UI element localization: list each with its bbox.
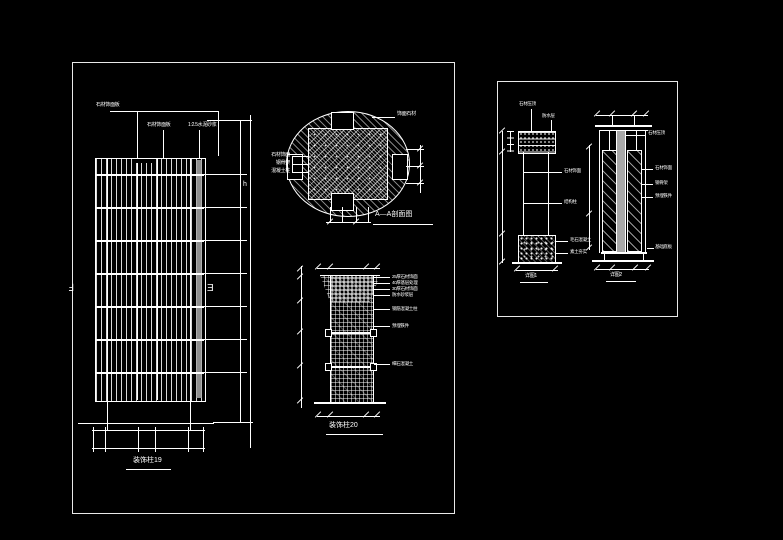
caption-underline bbox=[606, 281, 636, 282]
leader-line bbox=[374, 277, 390, 278]
detail-band-line bbox=[330, 366, 372, 368]
dimension-tick-strip bbox=[507, 131, 514, 153]
detail2-annotation: 预埋铁件 bbox=[655, 194, 672, 199]
dimension-tick-strip bbox=[204, 174, 247, 374]
caption-underline bbox=[520, 282, 548, 283]
detail-joint-block bbox=[325, 329, 332, 337]
detail-annotation: 细石混凝土 bbox=[392, 362, 413, 367]
detail1-shaft-joint bbox=[523, 172, 548, 173]
dimension-line bbox=[596, 269, 649, 270]
dimension-line bbox=[420, 145, 421, 193]
detail1-base-line bbox=[512, 262, 562, 264]
plan-caption: A—A剖面图 bbox=[375, 211, 412, 219]
dimension-line bbox=[406, 149, 424, 150]
plan-annotation: 混凝土柱 bbox=[250, 169, 290, 175]
leader-line bbox=[374, 283, 390, 284]
plan-notch-right bbox=[392, 154, 408, 180]
detail2-outer-face bbox=[599, 130, 600, 253]
detail2-stub-line bbox=[636, 130, 637, 150]
leader-line bbox=[137, 111, 138, 158]
dimension-tick bbox=[93, 427, 94, 452]
leader-line bbox=[374, 295, 390, 296]
base-extension-line bbox=[107, 400, 108, 430]
detail2-right-panel bbox=[627, 150, 642, 252]
detail2-base-stub bbox=[643, 252, 644, 260]
detail2-annotation: 基础底板 bbox=[655, 245, 672, 250]
detail2-annotation: 石材饰面 bbox=[655, 166, 672, 171]
detail2-stub-line bbox=[609, 130, 610, 150]
elevation-annotation: 石材饰面板 bbox=[96, 103, 120, 109]
detail2-caption: 详图2 bbox=[610, 273, 622, 279]
dimension-line bbox=[326, 222, 371, 223]
detail1-annotation: 素土夯实 bbox=[570, 250, 587, 255]
detail-annotation: 预埋铁件 bbox=[392, 324, 409, 329]
caption-underline bbox=[326, 434, 383, 435]
detail1-annotation: 防水层 bbox=[542, 114, 555, 119]
plan-annotation: 石材饰面 bbox=[250, 153, 290, 159]
detail2-base-stub bbox=[604, 252, 605, 260]
detail-joint-block bbox=[325, 363, 332, 371]
caption-underline bbox=[126, 469, 171, 470]
detail1-annotation: 石材压顶 bbox=[519, 102, 536, 107]
cad-canvas: 石材饰面板 石材饰面板 1:2.5水泥砂浆 Ⅎ Ǝ h 装饰柱19 石材饰面 钢… bbox=[0, 0, 783, 540]
section-marker-left: Ⅎ bbox=[68, 283, 74, 294]
detail-shaft bbox=[330, 275, 374, 403]
detail-annotation: 防水砂浆层 bbox=[392, 293, 413, 298]
leader-line bbox=[163, 130, 164, 158]
dimension-line bbox=[589, 145, 590, 250]
elevation-annotation: 石材饰面板 bbox=[147, 123, 171, 129]
dimension-tick bbox=[203, 427, 204, 452]
leader-line bbox=[292, 156, 308, 157]
leader-line bbox=[199, 130, 200, 158]
leader-line bbox=[374, 326, 390, 327]
dimension-line bbox=[406, 166, 424, 167]
dimension-tick bbox=[342, 207, 343, 223]
detail2-annotation: 钢骨架 bbox=[655, 181, 668, 186]
dimension-line bbox=[213, 422, 253, 423]
plan-core-square bbox=[308, 128, 388, 200]
detail1-shaft-joint bbox=[523, 203, 548, 204]
column-band-lines bbox=[95, 174, 204, 375]
leader-line bbox=[292, 172, 308, 173]
detail1-cap-block bbox=[518, 131, 556, 154]
column-joint-line bbox=[157, 158, 158, 400]
dimension-tick bbox=[138, 427, 139, 452]
detail1-footing-block bbox=[518, 235, 556, 264]
leader-line bbox=[548, 172, 562, 173]
dimension-tick bbox=[105, 427, 106, 452]
dimension-line bbox=[301, 266, 302, 408]
detail2-left-panel bbox=[602, 150, 617, 252]
dimension-tick bbox=[368, 207, 369, 223]
leader-line bbox=[372, 117, 395, 118]
detail-caption: 装饰柱20 bbox=[329, 422, 358, 430]
detail2-outer-face bbox=[645, 130, 646, 253]
dimension-line bbox=[596, 115, 648, 116]
leader-line bbox=[110, 111, 218, 112]
leader-line bbox=[647, 248, 654, 249]
detail2-annotation: 石材压顶 bbox=[648, 131, 665, 136]
dimension-tick bbox=[188, 427, 189, 452]
detail2-base-line bbox=[592, 260, 654, 262]
leader-line bbox=[555, 253, 568, 254]
leader-line bbox=[555, 241, 568, 242]
leader-line bbox=[624, 135, 646, 136]
leader-line bbox=[641, 197, 653, 198]
dimension-line bbox=[406, 183, 424, 184]
detail2-cap-plate bbox=[595, 125, 652, 127]
leader-line bbox=[374, 289, 390, 290]
detail2-steel-core bbox=[616, 131, 626, 252]
leader-line bbox=[641, 184, 653, 185]
leader-line bbox=[548, 203, 562, 204]
detail1-annotation: 结构柱 bbox=[564, 200, 577, 205]
plan-annotation: 饰面石材 bbox=[397, 112, 416, 118]
leader-line bbox=[531, 109, 532, 132]
leader-line bbox=[374, 309, 390, 310]
detail-joint-block bbox=[370, 329, 377, 337]
dimension-line bbox=[207, 120, 252, 121]
detail1-caption: 详图1 bbox=[525, 274, 537, 280]
detail2-base-plate bbox=[601, 252, 647, 254]
caption-underline bbox=[373, 224, 433, 225]
leader-line bbox=[218, 111, 219, 156]
detail1-annotation: 毛石混凝土 bbox=[570, 238, 591, 243]
base-extension-line bbox=[190, 400, 191, 430]
detail-base-line bbox=[314, 402, 386, 404]
dimension-tick bbox=[155, 427, 156, 452]
column-joint-line bbox=[190, 158, 191, 400]
column-top-notch bbox=[136, 159, 154, 163]
detail1-annotation: 石材饰面 bbox=[564, 169, 581, 174]
elevation-caption: 装饰柱19 bbox=[133, 457, 162, 465]
detail1-shaft bbox=[523, 152, 549, 235]
leader-line bbox=[292, 164, 308, 165]
plan-notch-top bbox=[331, 112, 354, 130]
detail-annotation: 钢筋混凝土柱 bbox=[392, 307, 417, 312]
dimension-line bbox=[78, 423, 214, 424]
column-joint-line bbox=[137, 158, 138, 400]
plan-annotation: 钢骨架 bbox=[250, 161, 290, 167]
elevation-annotation: 1:2.5水泥砂浆 bbox=[188, 123, 216, 129]
height-dimension-label: h bbox=[243, 181, 247, 189]
leader-line bbox=[641, 169, 653, 170]
leader-line bbox=[374, 364, 390, 365]
column-joint-line bbox=[107, 158, 108, 400]
detail-band-line bbox=[330, 332, 372, 334]
